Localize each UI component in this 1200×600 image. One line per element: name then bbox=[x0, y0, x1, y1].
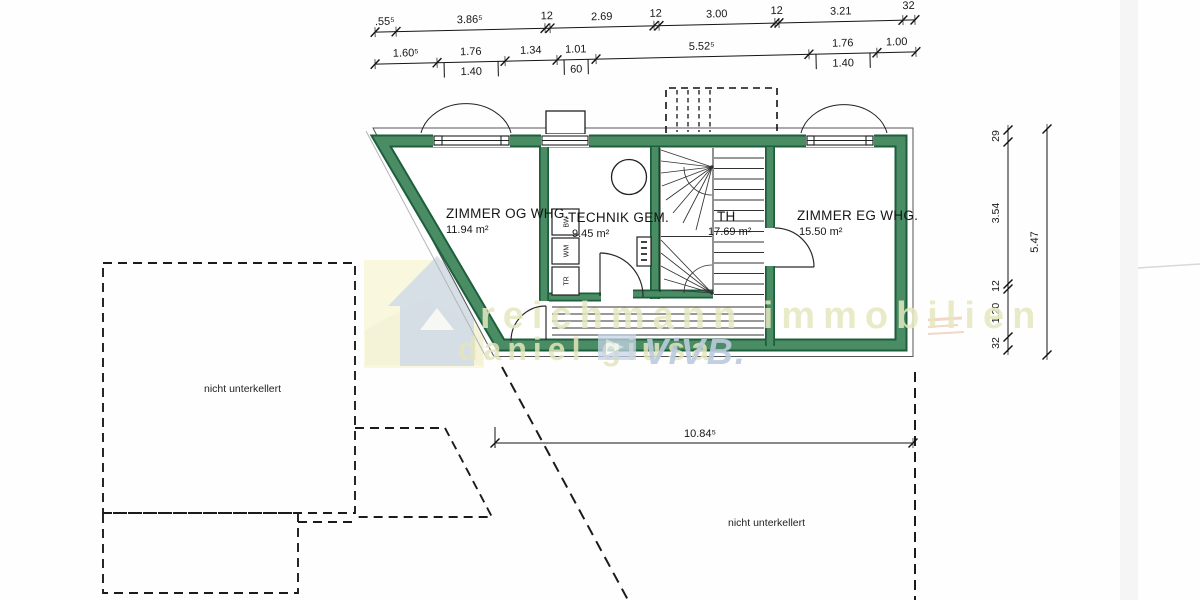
dim-sub-1: 60 bbox=[570, 63, 583, 75]
room-area-technik: 9.45 m² bbox=[572, 228, 610, 240]
dim-second-3: 1.01 bbox=[565, 43, 587, 55]
roof-dashed-outline bbox=[666, 88, 777, 133]
dim-right-0: 29 bbox=[990, 130, 1002, 142]
watermark-text: reichmann immobilien daniel giusa ViVB. bbox=[458, 295, 1043, 372]
watermark-flag-icon bbox=[598, 334, 636, 360]
dim-second-0: 1.60⁵ bbox=[393, 47, 419, 60]
dim-top-1: 3.86⁵ bbox=[457, 14, 483, 27]
note-nicht-unterkellert-right: nicht unterkellert bbox=[728, 517, 805, 529]
dim-second-5: 1.76 bbox=[832, 37, 854, 49]
room-area-eg: 15.50 m² bbox=[799, 226, 843, 238]
dim-top-6: 12 bbox=[770, 5, 783, 17]
dim-top-5: 3.00 bbox=[706, 8, 728, 20]
floorplan-scan: BW WM TR ZIMMER OG WHG. 11.94 m² TECHNIK… bbox=[0, 0, 1200, 600]
chimney-window-middle bbox=[541, 111, 589, 147]
room-area-th: 17.69 m² bbox=[708, 226, 752, 238]
dim-top-3: 2.69 bbox=[591, 11, 613, 23]
dim-sub-0: 1.40 bbox=[460, 66, 482, 78]
dim-chain-top: .55⁵ 3.86⁵ 12 2.69 12 3.00 12 3.21 32 bbox=[370, 0, 919, 37]
dim-right-2: 12 bbox=[990, 280, 1002, 292]
dim-chain-second: 1.60⁵ 1.76 1.34 1.01 5.52⁵ 1.76 1.00 1.4… bbox=[370, 36, 921, 80]
window-left bbox=[421, 104, 511, 147]
scan-artifacts bbox=[1120, 0, 1200, 600]
boiler-tank-circle bbox=[612, 160, 647, 195]
dim-top-4: 12 bbox=[649, 8, 662, 20]
dim-second-6: 1.00 bbox=[886, 36, 908, 48]
room-name-th: TH bbox=[717, 209, 736, 224]
heater-box bbox=[637, 237, 651, 266]
dim-right-total-label: 5.47 bbox=[1029, 231, 1041, 252]
dim-top-2: 12 bbox=[540, 10, 553, 22]
dim-top-0: .55⁵ bbox=[375, 16, 395, 28]
room-name-eg: ZIMMER EG WHG. bbox=[797, 208, 918, 223]
dim-top-8: 32 bbox=[902, 0, 915, 12]
dim-second-1: 1.76 bbox=[460, 46, 482, 58]
dim-bottom-total-label: 10.84⁵ bbox=[684, 428, 716, 440]
dim-second-2: 1.34 bbox=[520, 44, 542, 56]
site-boundary-diagonal-dashed bbox=[502, 367, 628, 600]
room-name-og: ZIMMER OG WHG. bbox=[446, 206, 569, 221]
room-area-og: 11.94 m² bbox=[446, 224, 489, 236]
appliance-label-tr: TR bbox=[564, 276, 571, 285]
dim-right-4: 32 bbox=[990, 337, 1002, 349]
dim-sub-2: 1.40 bbox=[832, 57, 854, 69]
dim-right-1: 3.54 bbox=[990, 203, 1002, 224]
basement-outline-trapezoid bbox=[355, 428, 492, 517]
chimney-box bbox=[546, 111, 585, 134]
dim-bottom-total: 10.84⁵ bbox=[491, 427, 918, 448]
watermark-brand: ViVB. bbox=[644, 331, 747, 372]
note-nicht-unterkellert-left: nicht unterkellert bbox=[204, 383, 281, 395]
appliance-label-wm: WM bbox=[564, 245, 571, 258]
dim-second-4: 5.52⁵ bbox=[689, 40, 715, 53]
room-name-technik: TECHNIK GEM. bbox=[568, 210, 669, 225]
dim-top-7: 3.21 bbox=[830, 5, 852, 17]
